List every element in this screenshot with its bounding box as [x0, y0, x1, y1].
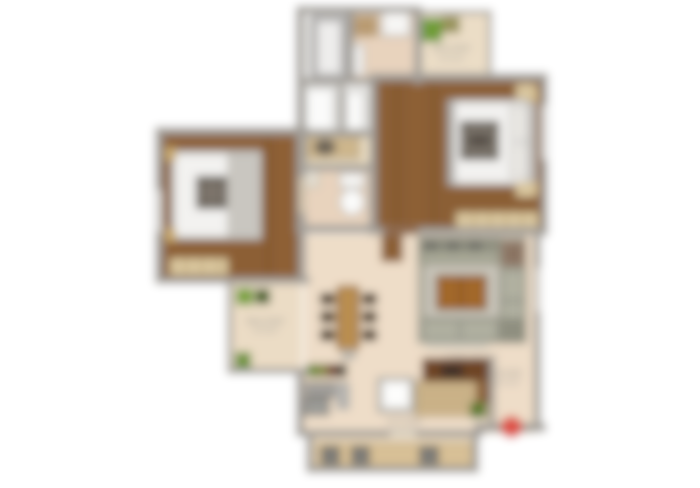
- svg-text:4'0"x6'0": 4'0"x6'0": [439, 56, 466, 63]
- svg-text:5'0"x6'0": 5'0"x6'0": [495, 380, 522, 387]
- svg-text:KITCHEN: KITCHEN: [386, 417, 421, 426]
- svg-text:BALCONY: BALCONY: [433, 44, 472, 53]
- svg-text:4'0"x8'0": 4'0"x8'0": [253, 328, 280, 335]
- svg-text:BALCONY: BALCONY: [247, 317, 286, 326]
- svg-text:FOYER: FOYER: [494, 369, 522, 378]
